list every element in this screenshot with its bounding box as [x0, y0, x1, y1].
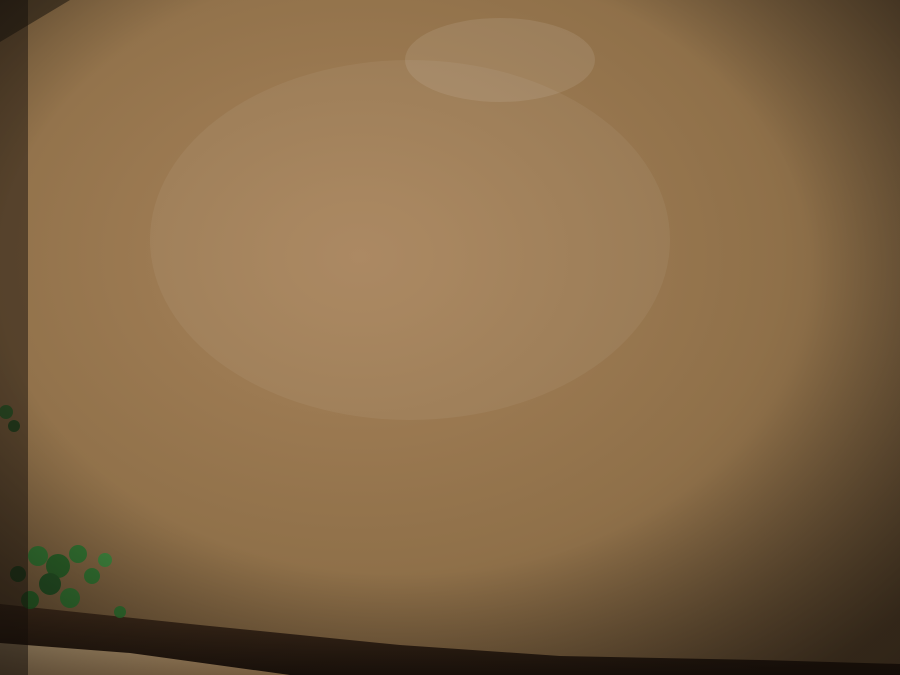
- vignette: [0, 0, 900, 675]
- photo-foreground: [0, 0, 900, 675]
- area-map: 文 M D: [0, 0, 900, 675]
- photo-of-illuminated-map-board: 文 M D: [0, 0, 900, 675]
